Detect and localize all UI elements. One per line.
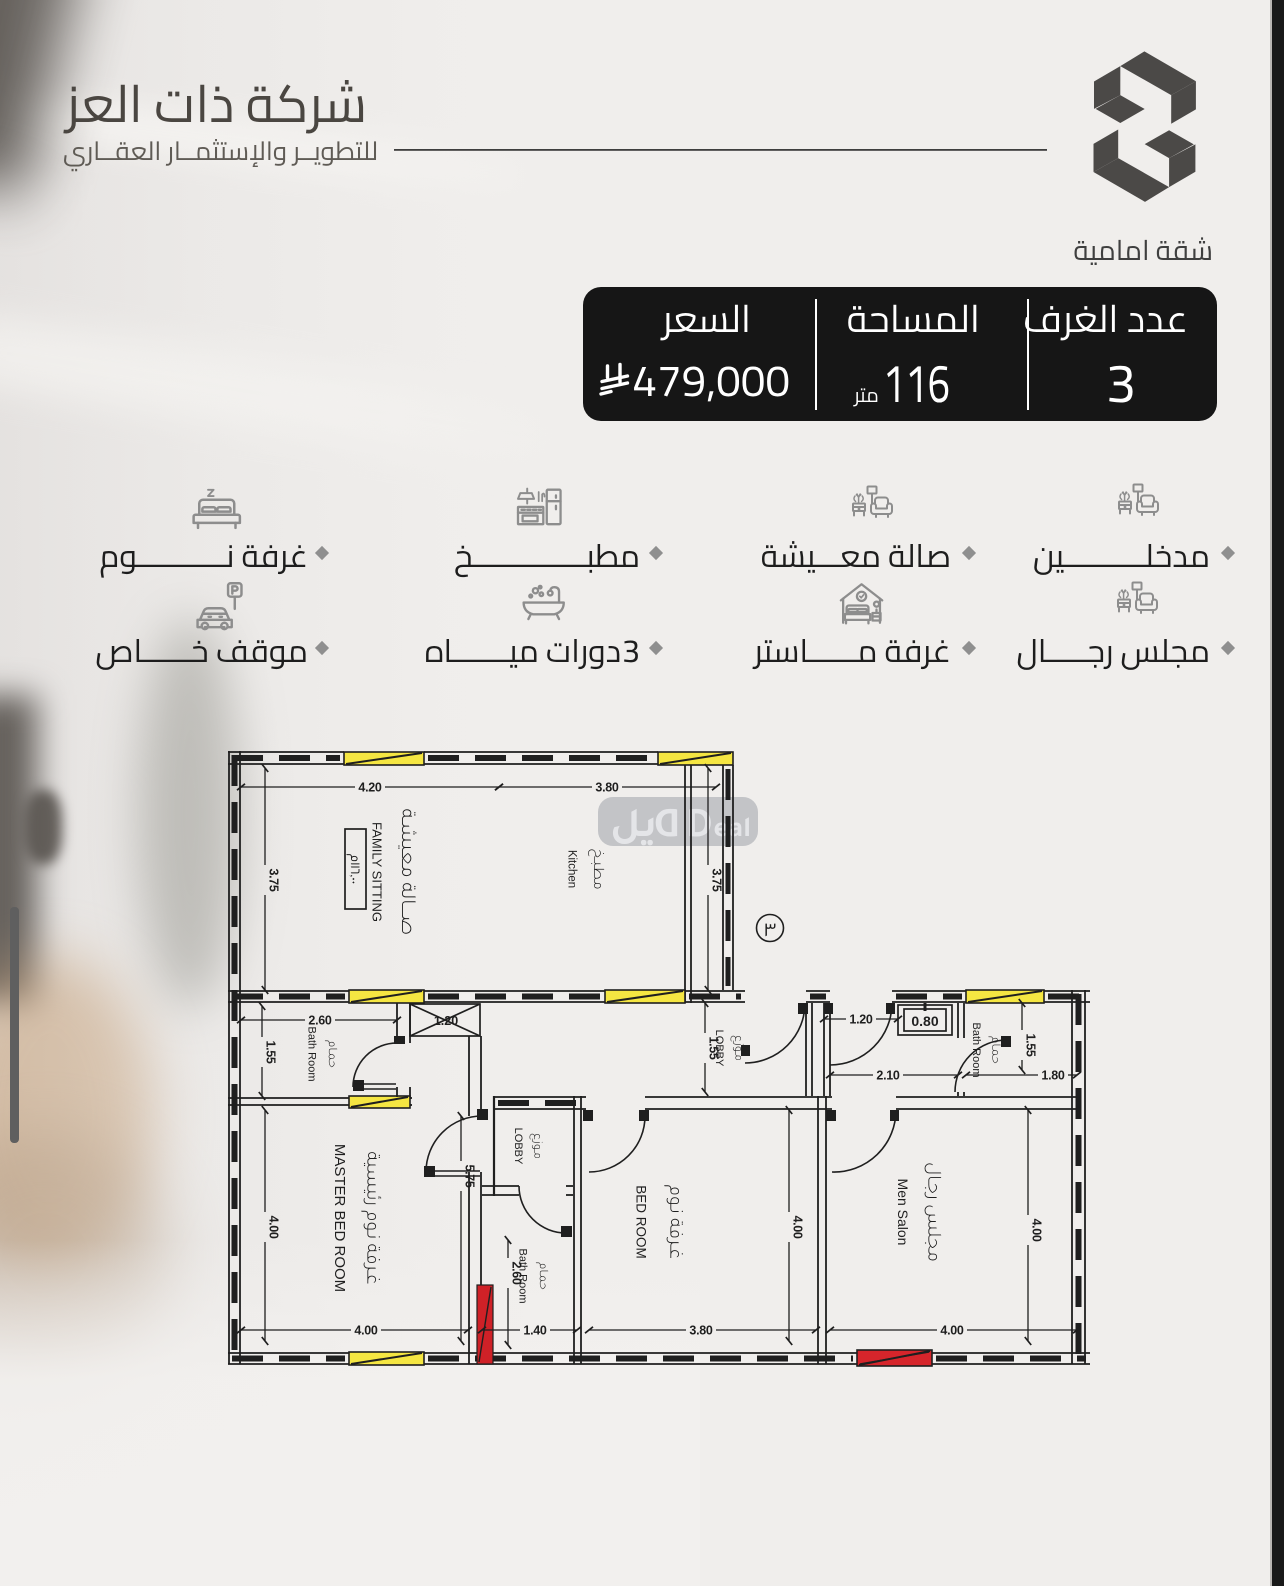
svg-text:1.55: 1.55 xyxy=(1024,1033,1038,1056)
svg-text:4.20: 4.20 xyxy=(358,781,381,795)
svg-text:4.00: 4.00 xyxy=(791,1215,805,1238)
svg-text:1.20: 1.20 xyxy=(434,1014,458,1028)
svg-text:3.75: 3.75 xyxy=(267,868,281,891)
svg-text:1.20: 1.20 xyxy=(849,1013,872,1027)
svg-text:LOBBY: LOBBY xyxy=(512,1128,524,1165)
svg-text:Bath Room: Bath Room xyxy=(517,1248,529,1303)
svg-text:Men Salon: Men Salon xyxy=(895,1179,911,1246)
svg-text:2.10: 2.10 xyxy=(876,1069,899,1083)
svg-text:3.80: 3.80 xyxy=(689,1324,712,1338)
svg-text:MASTER BED ROOM: MASTER BED ROOM xyxy=(331,1144,348,1292)
svg-text:0.80: 0.80 xyxy=(911,1013,938,1029)
svg-text:Kitchen: Kitchen xyxy=(566,850,578,888)
svg-text:4.00: 4.00 xyxy=(940,1324,963,1338)
svg-text:1.40: 1.40 xyxy=(523,1324,546,1338)
svg-text:FAMILY SITTING: FAMILY SITTING xyxy=(370,822,385,922)
svg-text:5.75: 5.75 xyxy=(463,1164,477,1187)
svg-text:4.00: 4.00 xyxy=(1030,1218,1044,1241)
svg-text:LOBBY: LOBBY xyxy=(713,1030,725,1067)
svg-text:Bath Room: Bath Room xyxy=(306,1026,318,1081)
svg-text:4.00: 4.00 xyxy=(267,1215,281,1238)
svg-text:3.75: 3.75 xyxy=(710,868,724,891)
svg-text:3.80: 3.80 xyxy=(595,781,618,795)
svg-text:Bath Room: Bath Room xyxy=(970,1022,982,1077)
svg-text:BED ROOM: BED ROOM xyxy=(633,1185,648,1259)
svg-text:1.55: 1.55 xyxy=(264,1040,278,1063)
svg-text:4.00: 4.00 xyxy=(354,1324,377,1338)
svg-text:1.80: 1.80 xyxy=(1041,1069,1064,1083)
svg-text:2.60: 2.60 xyxy=(308,1014,331,1028)
